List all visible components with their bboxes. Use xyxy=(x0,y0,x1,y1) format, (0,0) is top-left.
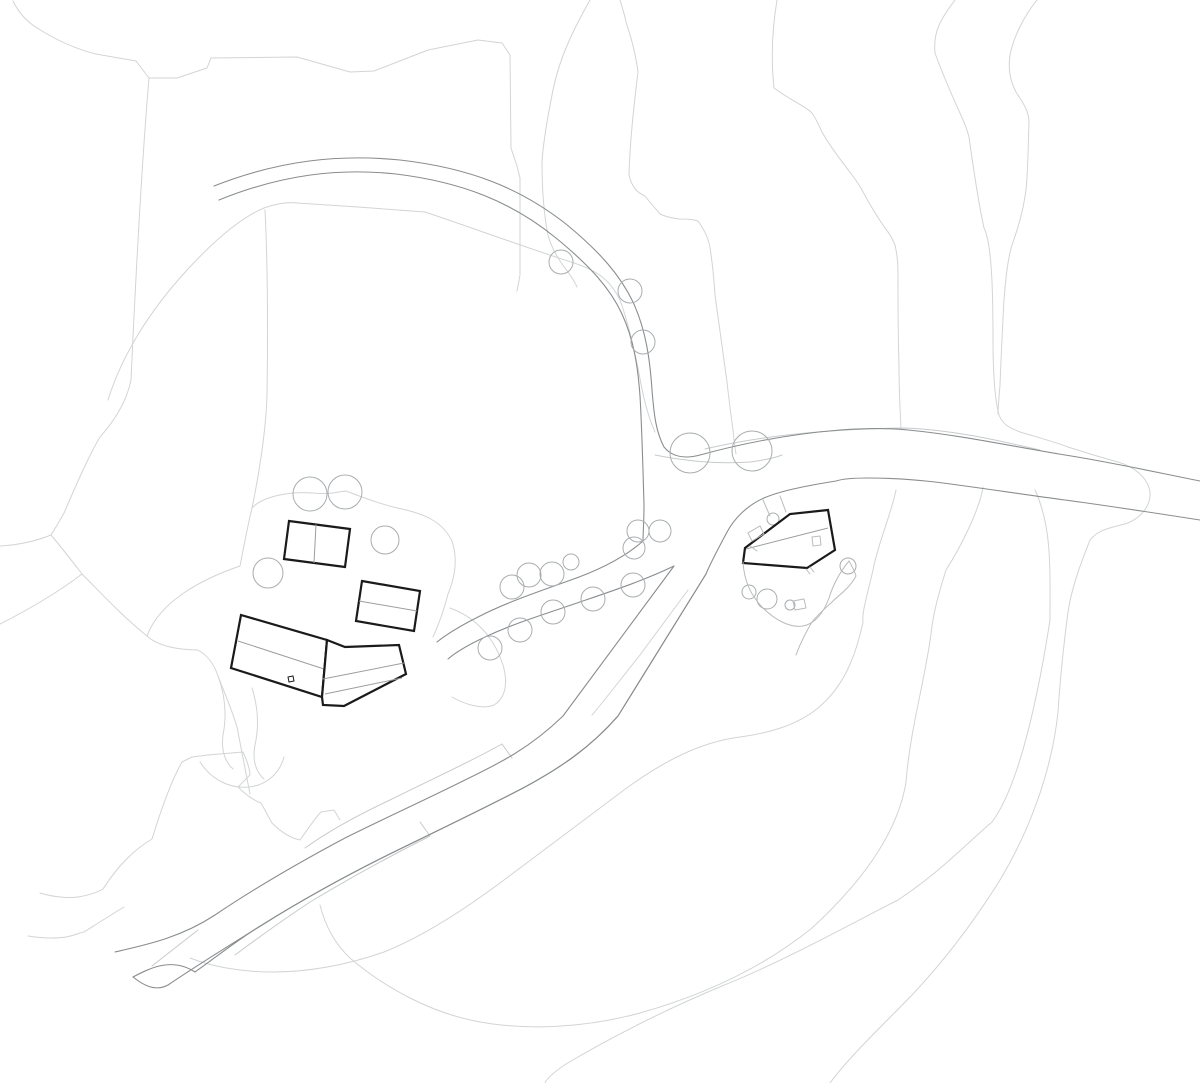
embankment-line xyxy=(235,836,430,955)
tree-layer xyxy=(253,250,856,660)
site-detail xyxy=(806,569,810,574)
tree xyxy=(508,618,532,642)
contour-line xyxy=(28,907,124,938)
contour-layer xyxy=(0,0,1150,1083)
contour-line xyxy=(542,0,590,287)
contour-line xyxy=(40,889,103,898)
contour-line xyxy=(545,490,1050,1083)
tree xyxy=(757,589,777,609)
tree xyxy=(563,554,579,570)
road-edge xyxy=(214,158,1200,481)
tree xyxy=(627,520,649,542)
tree xyxy=(621,573,645,597)
tree xyxy=(631,330,655,354)
tree xyxy=(840,558,856,574)
building-c-bar xyxy=(231,615,327,697)
embankment-line xyxy=(655,455,782,463)
tree xyxy=(253,558,283,588)
building-d xyxy=(743,510,835,568)
road-layer xyxy=(115,158,1200,988)
site-detail xyxy=(780,496,786,512)
building-a xyxy=(284,521,350,567)
embankment-line xyxy=(305,744,502,848)
contour-line xyxy=(108,203,655,432)
tree xyxy=(649,520,671,542)
contour-line xyxy=(320,487,983,1027)
tree xyxy=(618,279,642,303)
building-c-wing xyxy=(322,640,406,706)
contour-line xyxy=(592,590,688,715)
tree xyxy=(732,431,772,471)
contour-line xyxy=(51,78,149,535)
embankment-layer xyxy=(152,428,1040,966)
embankment-line xyxy=(420,822,430,836)
tree xyxy=(328,475,362,509)
contour-line xyxy=(998,0,1037,414)
contour-line xyxy=(218,676,233,769)
tree xyxy=(540,562,564,586)
tree xyxy=(371,526,399,554)
contour-line xyxy=(82,574,147,636)
road-edge xyxy=(133,574,706,977)
contour-line xyxy=(0,535,51,546)
tree xyxy=(478,636,502,660)
site-detail xyxy=(763,500,770,516)
contour-line xyxy=(252,688,264,779)
tree xyxy=(293,477,327,511)
contour-line xyxy=(620,0,736,454)
contour-line xyxy=(772,0,901,428)
site-plan-drawing xyxy=(0,0,1200,1083)
building-layer xyxy=(231,510,835,706)
contour-line xyxy=(0,535,82,624)
tree xyxy=(517,563,541,587)
tree xyxy=(500,575,524,599)
contour-line xyxy=(830,0,1150,1083)
contour-line xyxy=(103,752,340,889)
contour-line xyxy=(252,210,268,508)
site-detail xyxy=(810,567,814,572)
tree xyxy=(541,600,565,624)
tree xyxy=(581,587,605,611)
site-plan xyxy=(0,0,1200,1083)
tree xyxy=(670,433,710,473)
